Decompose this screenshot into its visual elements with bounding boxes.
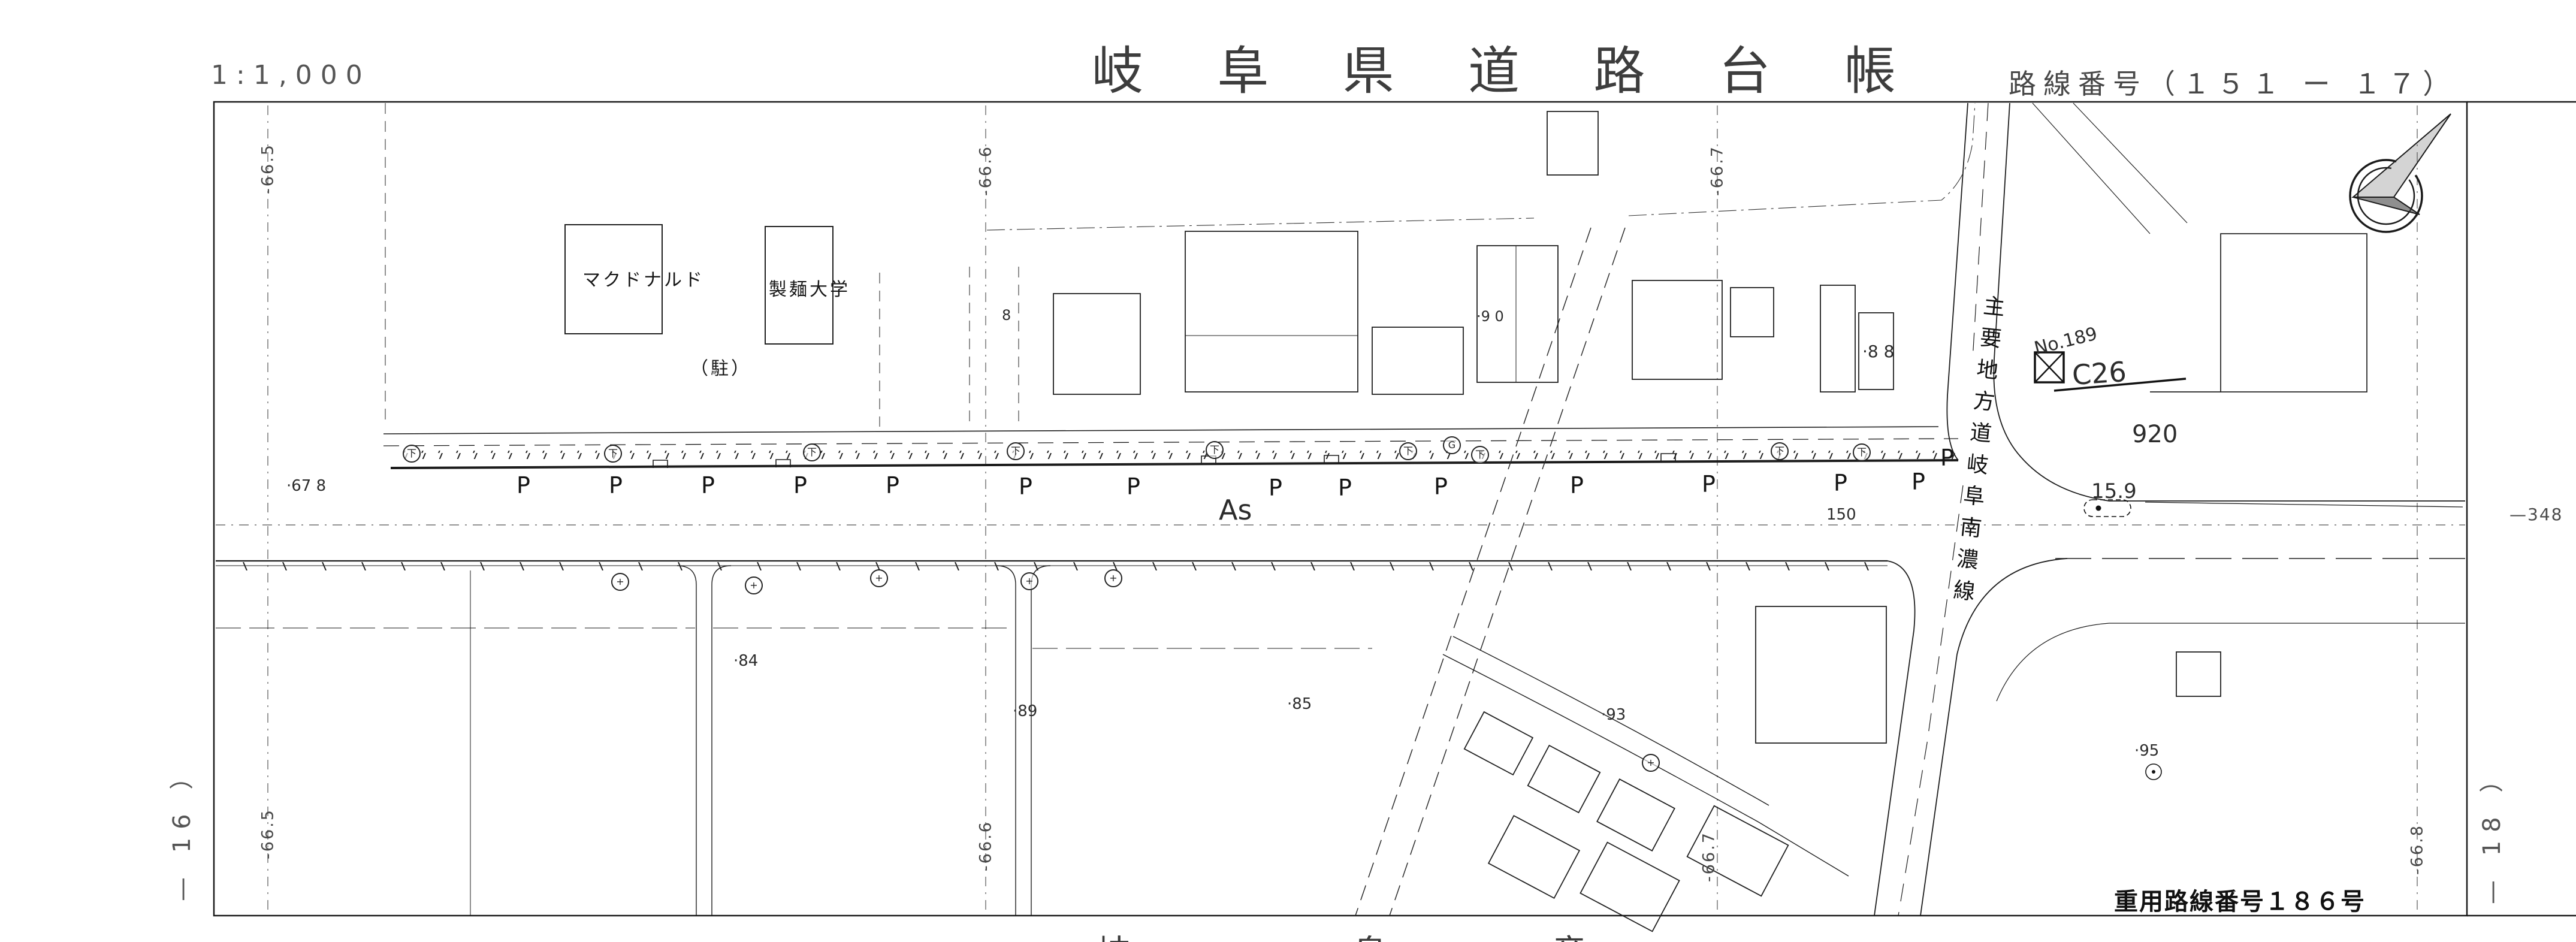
map-annotation-label: 150 <box>1826 506 1856 524</box>
parking-mark: P <box>1269 475 1282 501</box>
map-border <box>214 102 2576 916</box>
parking-mark: P <box>1570 472 1584 499</box>
map-annotation-label: ·95 <box>2134 742 2159 760</box>
utility-mark-icon: + <box>745 576 763 594</box>
route-number-label: 路線番号（１５１ ー １７） <box>2009 62 2457 102</box>
grid-coordinate-label: -66.5 <box>259 133 277 205</box>
north-arrow-icon <box>2350 114 2451 232</box>
parking-label: （駐） <box>690 354 751 380</box>
railway-lines <box>1355 228 1625 916</box>
parking-mark: P <box>1702 471 1716 497</box>
map-annotation-label: ·89 <box>1013 702 1037 720</box>
map-annotation-label: C26 <box>2071 355 2127 391</box>
map-annotation-label: ·85 <box>1287 695 1312 713</box>
grid-coordinate-label: -66.7 <box>1708 135 1727 207</box>
southeast-buildings <box>1464 606 2221 931</box>
north-buildings <box>565 111 1894 394</box>
parking-mark: P <box>1019 473 1032 500</box>
utility-mark-icon: + <box>1104 569 1122 587</box>
next-sheet-title-fragment: 岐 <box>1095 925 1148 942</box>
map-annotation-label: 15.9 <box>2091 479 2137 503</box>
spot-circle-symbol <box>2146 764 2161 780</box>
utility-mark-icon: 下 <box>1471 446 1489 464</box>
map-annotation-label: ·67 8 <box>286 477 326 495</box>
parking-mark: P <box>1940 445 1954 471</box>
right-coordinate-label: —348 <box>2509 505 2563 524</box>
right-sheet-number: — 18 ） <box>2472 784 2507 904</box>
parking-mark: P <box>1911 469 1925 495</box>
page-title: 岐 阜 県 道 路 台 帳 <box>1092 29 1925 104</box>
map-linework <box>0 0 2576 942</box>
utility-mark-icon: 下 <box>1853 443 1871 461</box>
utility-mark-icon: + <box>1642 754 1660 772</box>
building-label-mcdonalds: マクドナルド <box>582 265 705 291</box>
building-label-university: 製麺大学 <box>769 274 850 301</box>
parking-mark: P <box>609 472 623 499</box>
left-sheet-number: — 16 ） <box>162 781 197 901</box>
utility-mark-icon: 下 <box>403 445 421 463</box>
south-streets <box>216 566 1849 916</box>
utility-mark-icon: 下 <box>604 445 622 463</box>
grid-lines <box>216 105 2465 912</box>
parking-mark: P <box>793 472 807 499</box>
parking-mark: P <box>886 472 899 499</box>
utility-mark-icon: 下 <box>1007 442 1025 460</box>
utility-mark-icon: 下 <box>803 443 821 461</box>
grid-coordinate-label: -66.8 <box>2408 814 2427 886</box>
map-annotation-label: 8 <box>1002 307 1011 324</box>
survey-symbols <box>2035 352 2186 780</box>
map-scale-label: 1:1,000 <box>211 60 371 90</box>
grid-coordinate-label: -66.6 <box>977 135 995 207</box>
map-annotation-label: 920 <box>2132 421 2178 448</box>
parking-mark: P <box>517 472 530 499</box>
parking-mark: P <box>1338 475 1352 501</box>
parking-mark: P <box>701 472 715 499</box>
next-sheet-title-fragment: 章 <box>1552 925 1605 942</box>
parking-mark: P <box>1434 473 1448 500</box>
utility-mark-icon: 下 <box>1771 442 1789 460</box>
parking-mark: P <box>1834 470 1847 496</box>
map-annotation-label: ·84 <box>733 652 758 670</box>
overlap-route-label: 重用路線番号１８６号 <box>2114 882 2366 917</box>
parking-mark: P <box>1127 473 1140 500</box>
utility-mark-icon: + <box>870 569 888 587</box>
grid-coordinate-label: -66.5 <box>259 798 277 870</box>
utility-mark-icon: + <box>1020 572 1038 590</box>
road-ledger-sheet: 1:1,000 岐 阜 県 道 路 台 帳 路線番号（１５１ ー １７） 重用路… <box>0 0 2576 942</box>
utility-mark-icon: 下 <box>1206 441 1224 459</box>
utility-mark-icon: + <box>611 573 629 591</box>
grid-coordinate-label: -66.6 <box>977 810 995 882</box>
map-annotation-label: ·9 0 <box>1476 308 1504 325</box>
map-annotation-label: ·8 8 <box>1862 342 1894 361</box>
utility-mark-icon: G <box>1443 436 1461 454</box>
next-sheet-title-fragment: 阜 <box>1353 925 1406 942</box>
map-annotation-label: ·93 <box>1601 706 1626 724</box>
grid-coordinate-label: -66.7 <box>1700 821 1719 893</box>
utility-mark-icon: 下 <box>1399 442 1417 460</box>
map-annotation-label: As <box>1219 494 1252 526</box>
